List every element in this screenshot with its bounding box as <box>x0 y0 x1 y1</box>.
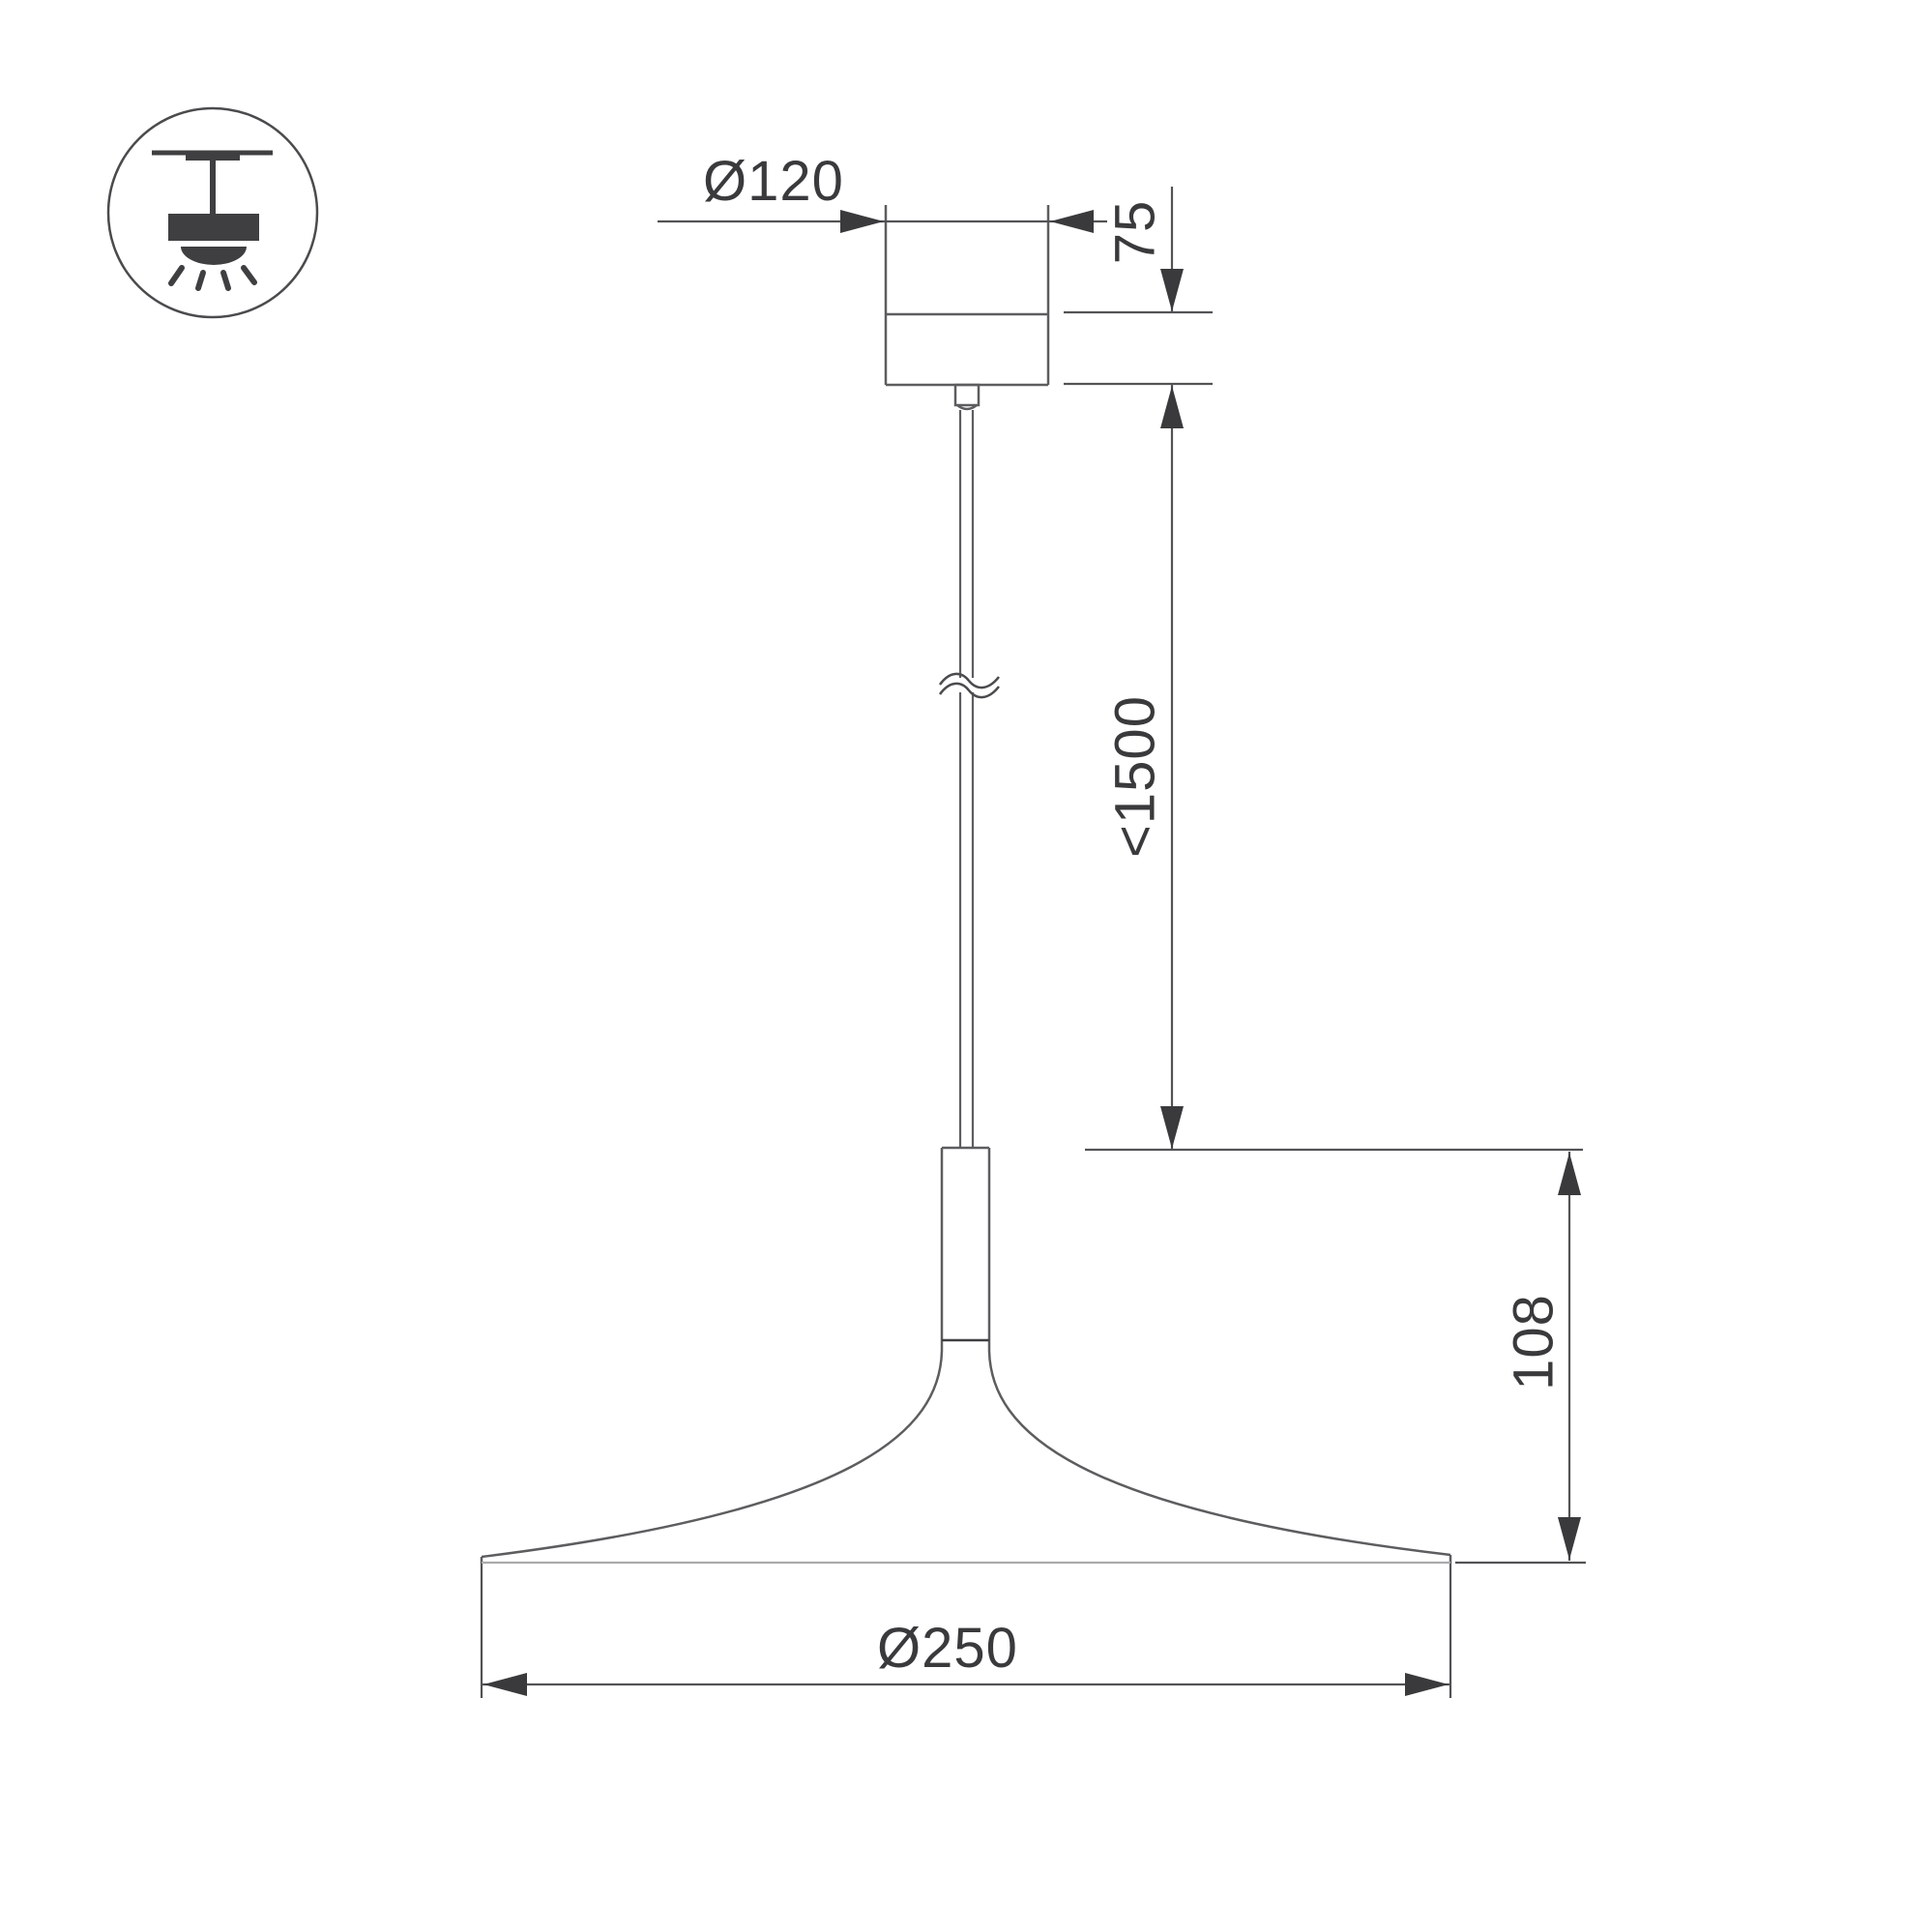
cable-break-symbol <box>940 674 999 697</box>
arrow-down-icon <box>1558 1517 1581 1560</box>
icon-light-rays <box>171 268 254 288</box>
cable-gland <box>955 385 979 405</box>
dim-canopy-diameter: Ø120 <box>658 150 1107 233</box>
ceiling-canopy <box>886 205 1048 409</box>
arrow-up-icon <box>1160 386 1184 428</box>
dim-lamp-height: 108 <box>1455 1152 1586 1563</box>
arrow-up-icon <box>1558 1153 1581 1195</box>
dim-label-shade-diameter: Ø250 <box>877 1617 1018 1680</box>
arrow-right-icon <box>840 210 884 233</box>
dim-shade-diameter: Ø250 <box>482 1564 1450 1698</box>
arrow-down-icon <box>1160 1106 1184 1149</box>
icon-lamp-dome <box>181 247 247 265</box>
arrow-right-icon <box>1405 1673 1449 1696</box>
shade-right-profile <box>989 1351 1450 1555</box>
technical-drawing-canvas: Ø120 75 <1500 108 Ø250 <box>0 0 1932 1932</box>
lamp-shade <box>482 1148 1450 1564</box>
pendant-mounting-icon <box>108 108 317 317</box>
pendant-lamp-drawing: Ø120 75 <1500 108 Ø250 <box>0 0 1932 1932</box>
arrow-left-icon <box>483 1673 527 1696</box>
dim-label-canopy-diameter: Ø120 <box>703 150 844 213</box>
dim-label-canopy-height: 75 <box>1104 200 1167 265</box>
arrow-left-icon <box>1050 210 1094 233</box>
shade-left-profile <box>482 1351 942 1557</box>
dim-suspension-length: <1500 <box>1085 385 1583 1150</box>
icon-lamp-body <box>168 214 259 241</box>
suspension-cable <box>960 410 973 1148</box>
dim-label-suspension-length: <1500 <box>1104 695 1167 858</box>
arrow-down-icon <box>1160 269 1184 311</box>
dim-label-lamp-height: 108 <box>1503 1294 1566 1390</box>
